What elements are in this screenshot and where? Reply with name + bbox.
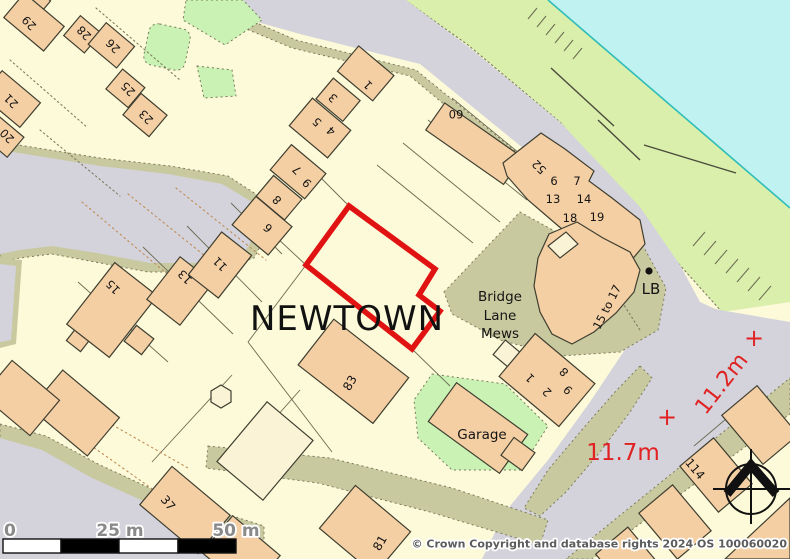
- label-scale-0: 0: [4, 521, 16, 541]
- label-place-name: NEWTOWN: [250, 299, 444, 339]
- label-garage-label: Garage: [457, 427, 506, 443]
- label-mews-line1: Bridge: [478, 289, 522, 305]
- label-house-14: 14: [577, 192, 592, 206]
- label-house-6b: 6: [550, 174, 557, 188]
- label-letter-box: LB: [642, 280, 661, 298]
- label-house-7b: 7: [573, 174, 580, 188]
- label-house-18: 18: [563, 211, 578, 225]
- label-copyright: © Crown Copyright and database rights 20…: [412, 538, 788, 551]
- green-square-topleft: [142, 22, 192, 72]
- label-house-19: 19: [590, 210, 605, 224]
- label-house-13b: 13: [546, 192, 561, 206]
- label-scale-50m: 50 m: [212, 521, 259, 541]
- os-map: 29282625232120135479866052671314181915 t…: [0, 0, 790, 559]
- scale-bar: [3, 539, 236, 553]
- label-house-60: 60: [449, 107, 464, 121]
- label-spot-height-117: 11.7m: [586, 440, 660, 466]
- map-canvas: 29282625232120135479866052671314181915 t…: [0, 0, 790, 559]
- label-scale-25m: 25 m: [96, 521, 143, 541]
- label-survey-cross-1: +: [657, 403, 677, 431]
- label-mews-line3: Mews: [481, 326, 519, 342]
- label-survey-cross-2: +: [744, 324, 764, 352]
- label-mews-line2: Lane: [484, 308, 517, 324]
- letter-box-dot: [645, 267, 652, 274]
